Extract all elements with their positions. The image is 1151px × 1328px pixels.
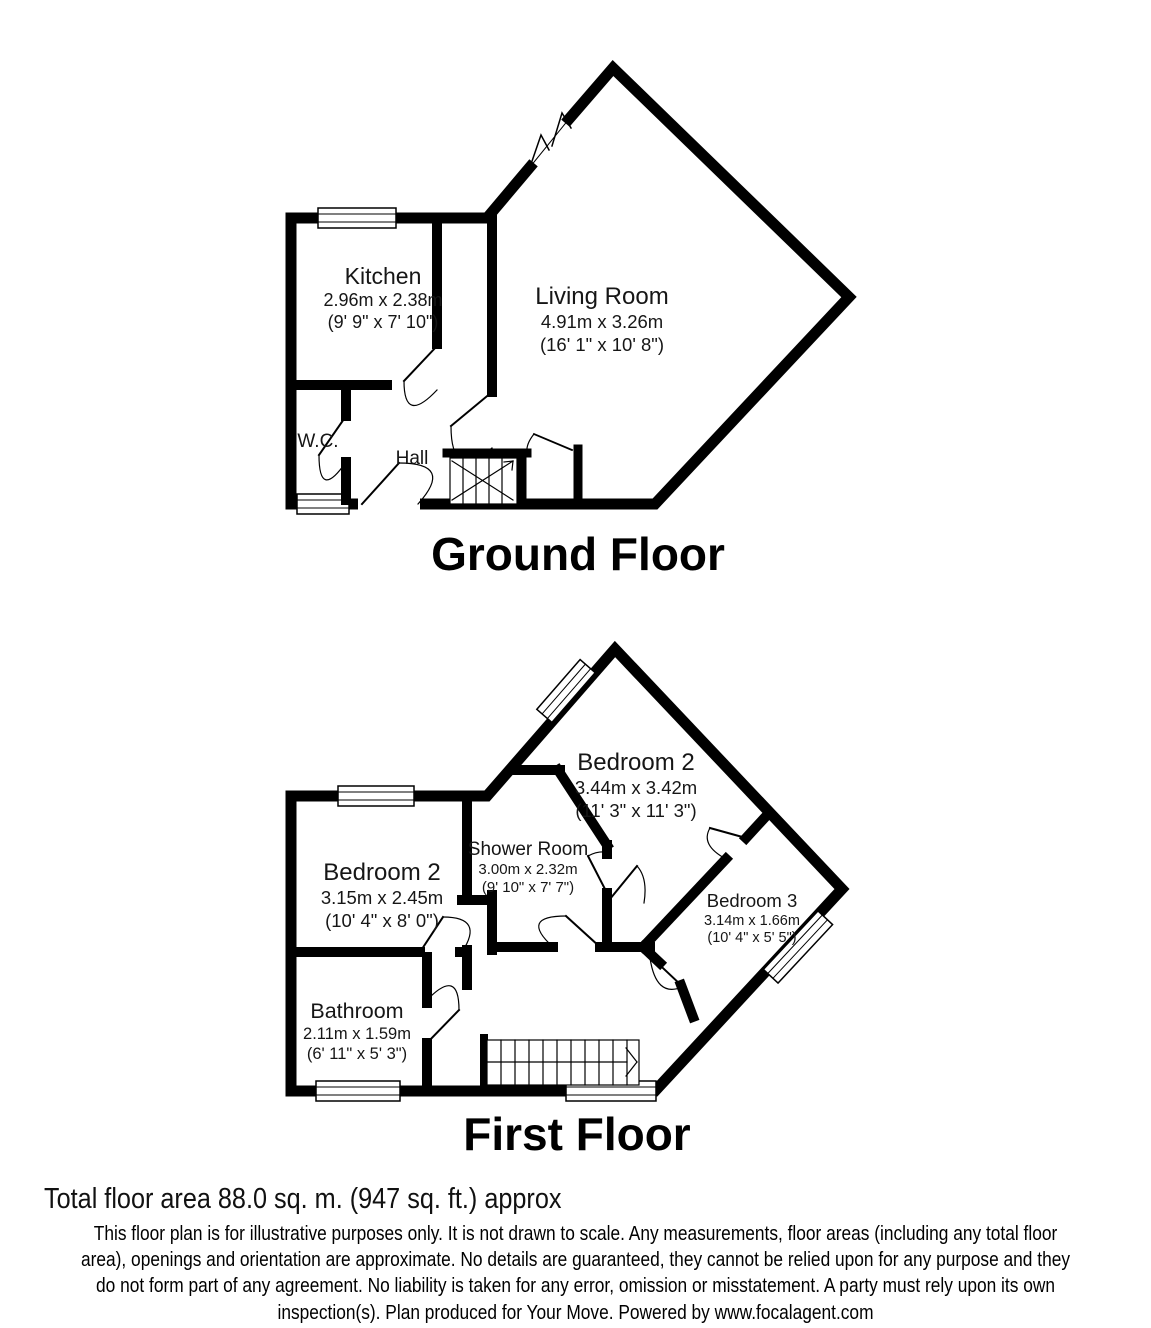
ground-floor-title: Ground Floor	[431, 527, 725, 581]
room-name: Bathroom	[303, 998, 411, 1024]
room-dim-imperial: (10' 4" x 5' 5")	[704, 930, 800, 948]
disclaimer-text: This floor plan is for illustrative purp…	[22, 1221, 1130, 1326]
label-living-room: Living Room 4.91m x 3.26m (16' 1" x 10' …	[535, 282, 668, 356]
room-dim-imperial: (6' 11" x 5' 3")	[303, 1044, 411, 1064]
ground-staircase	[450, 458, 517, 504]
kitchen-door	[404, 346, 437, 406]
label-wc: W.C.	[297, 430, 338, 453]
room-dim-imperial: (10' 4" x 8' 0")	[321, 910, 443, 933]
floorplan-page: Kitchen 2.96m x 2.38m (9' 9" x 7' 10") L…	[0, 0, 1151, 1328]
first-top-window	[338, 786, 414, 806]
room-dim-imperial: (9' 9" x 7' 10")	[323, 312, 442, 334]
label-bedroom3: Bedroom 3 3.14m x 1.66m (10' 4" x 5' 5")	[704, 890, 800, 948]
room-dim-imperial: (16' 1" x 10' 8")	[535, 334, 668, 357]
label-bathroom: Bathroom 2.11m x 1.59m (6' 11" x 5' 3")	[303, 998, 411, 1064]
room-dim-metric: 2.96m x 2.38m	[323, 290, 442, 312]
label-shower-room: Shower Room 3.00m x 2.32m (9' 10" x 7' 7…	[468, 838, 588, 898]
room-name: Living Room	[535, 282, 668, 311]
room-dim-metric: 3.14m x 1.66m	[704, 913, 800, 931]
ground-interior-walls	[291, 218, 578, 504]
label-hall: Hall	[396, 447, 429, 470]
first-floor-title: First Floor	[463, 1107, 690, 1161]
room-dim-metric: 3.15m x 2.45m	[321, 887, 443, 910]
room-name: Bedroom 3	[704, 890, 800, 913]
disclaimer-line: inspection(s). Plan produced for Your Mo…	[22, 1300, 1130, 1326]
room-name: Hall	[396, 447, 429, 470]
room-dim-imperial: (9' 10" x 7' 7")	[468, 879, 588, 897]
bathroom-window	[316, 1081, 400, 1101]
room-name: Bedroom 2	[321, 858, 443, 887]
room-dim-metric: 2.11m x 1.59m	[303, 1024, 411, 1044]
room-name: Shower Room	[468, 838, 588, 861]
understairs-closet-door	[527, 434, 572, 452]
first-staircase	[487, 1040, 639, 1085]
room-name: W.C.	[297, 430, 338, 453]
disclaimer-line: do not form part of any agreement. No li…	[22, 1273, 1130, 1299]
label-kitchen: Kitchen 2.96m x 2.38m (9' 9" x 7' 10")	[323, 262, 442, 334]
disclaimer-line: This floor plan is for illustrative purp…	[22, 1221, 1130, 1247]
kitchen-window	[318, 208, 396, 228]
room-dim-metric: 3.44m x 3.42m	[575, 777, 697, 800]
room-name: Bedroom 2	[575, 748, 697, 777]
total-floor-area: Total floor area 88.0 sq. m. (947 sq. ft…	[44, 1183, 561, 1216]
label-bedroom2-left: Bedroom 2 3.15m x 2.45m (10' 4" x 8' 0")	[321, 858, 443, 932]
label-bedroom2-main: Bedroom 2 3.44m x 3.42m (11' 3" x 11' 3"…	[575, 748, 697, 822]
disclaimer-line: area), openings and orientation are appr…	[22, 1247, 1130, 1273]
room-dim-metric: 3.00m x 2.32m	[468, 861, 588, 879]
room-dim-imperial: (11' 3" x 11' 3")	[575, 800, 697, 823]
room-dim-metric: 4.91m x 3.26m	[535, 311, 668, 334]
room-name: Kitchen	[323, 262, 442, 290]
